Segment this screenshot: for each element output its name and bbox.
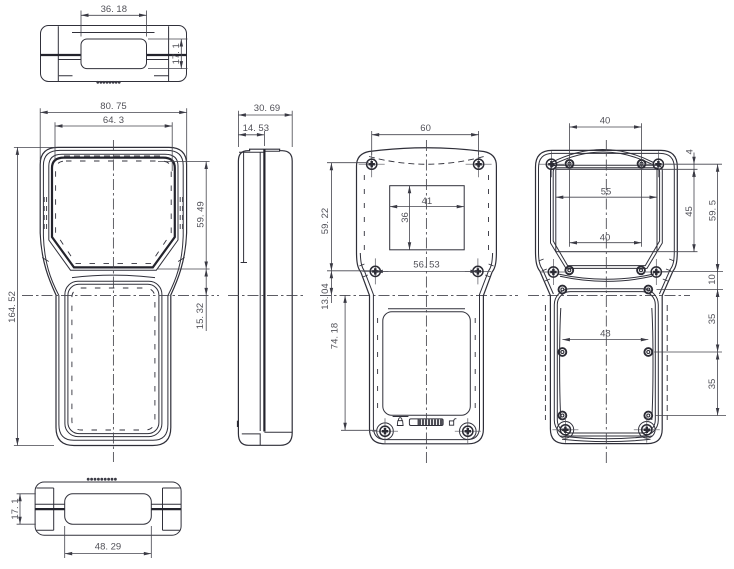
svg-text:80. 75: 80. 75 <box>100 101 126 112</box>
svg-text:10: 10 <box>707 274 718 285</box>
svg-text:40: 40 <box>600 233 611 244</box>
svg-text:17. 1: 17. 1 <box>10 498 21 519</box>
svg-text:41: 41 <box>422 196 433 207</box>
svg-text:55: 55 <box>601 187 612 198</box>
svg-text:17. 1: 17. 1 <box>171 43 182 64</box>
svg-text:35: 35 <box>707 379 718 390</box>
svg-text:56. 53: 56. 53 <box>413 259 439 270</box>
svg-text:164. 52: 164. 52 <box>7 291 18 323</box>
svg-text:59. 22: 59. 22 <box>320 208 331 234</box>
svg-text:36: 36 <box>400 212 411 223</box>
svg-text:40: 40 <box>600 116 611 127</box>
svg-text:48. 29: 48. 29 <box>95 542 121 553</box>
svg-text:59. 5: 59. 5 <box>708 200 719 221</box>
svg-text:15. 32: 15. 32 <box>195 303 206 329</box>
svg-text:13. 04: 13. 04 <box>320 283 331 309</box>
svg-text:4: 4 <box>684 149 695 154</box>
svg-text:14. 53: 14. 53 <box>243 123 269 134</box>
svg-text:45: 45 <box>684 206 695 217</box>
svg-text:48: 48 <box>600 329 611 340</box>
svg-text:35: 35 <box>707 314 718 325</box>
svg-text:74. 18: 74. 18 <box>329 323 340 349</box>
svg-text:64. 3: 64. 3 <box>103 115 124 126</box>
svg-text:59. 49: 59. 49 <box>196 201 207 227</box>
svg-text:36. 18: 36. 18 <box>101 4 127 15</box>
svg-text:60: 60 <box>420 123 431 134</box>
svg-text:30. 69: 30. 69 <box>254 103 280 114</box>
